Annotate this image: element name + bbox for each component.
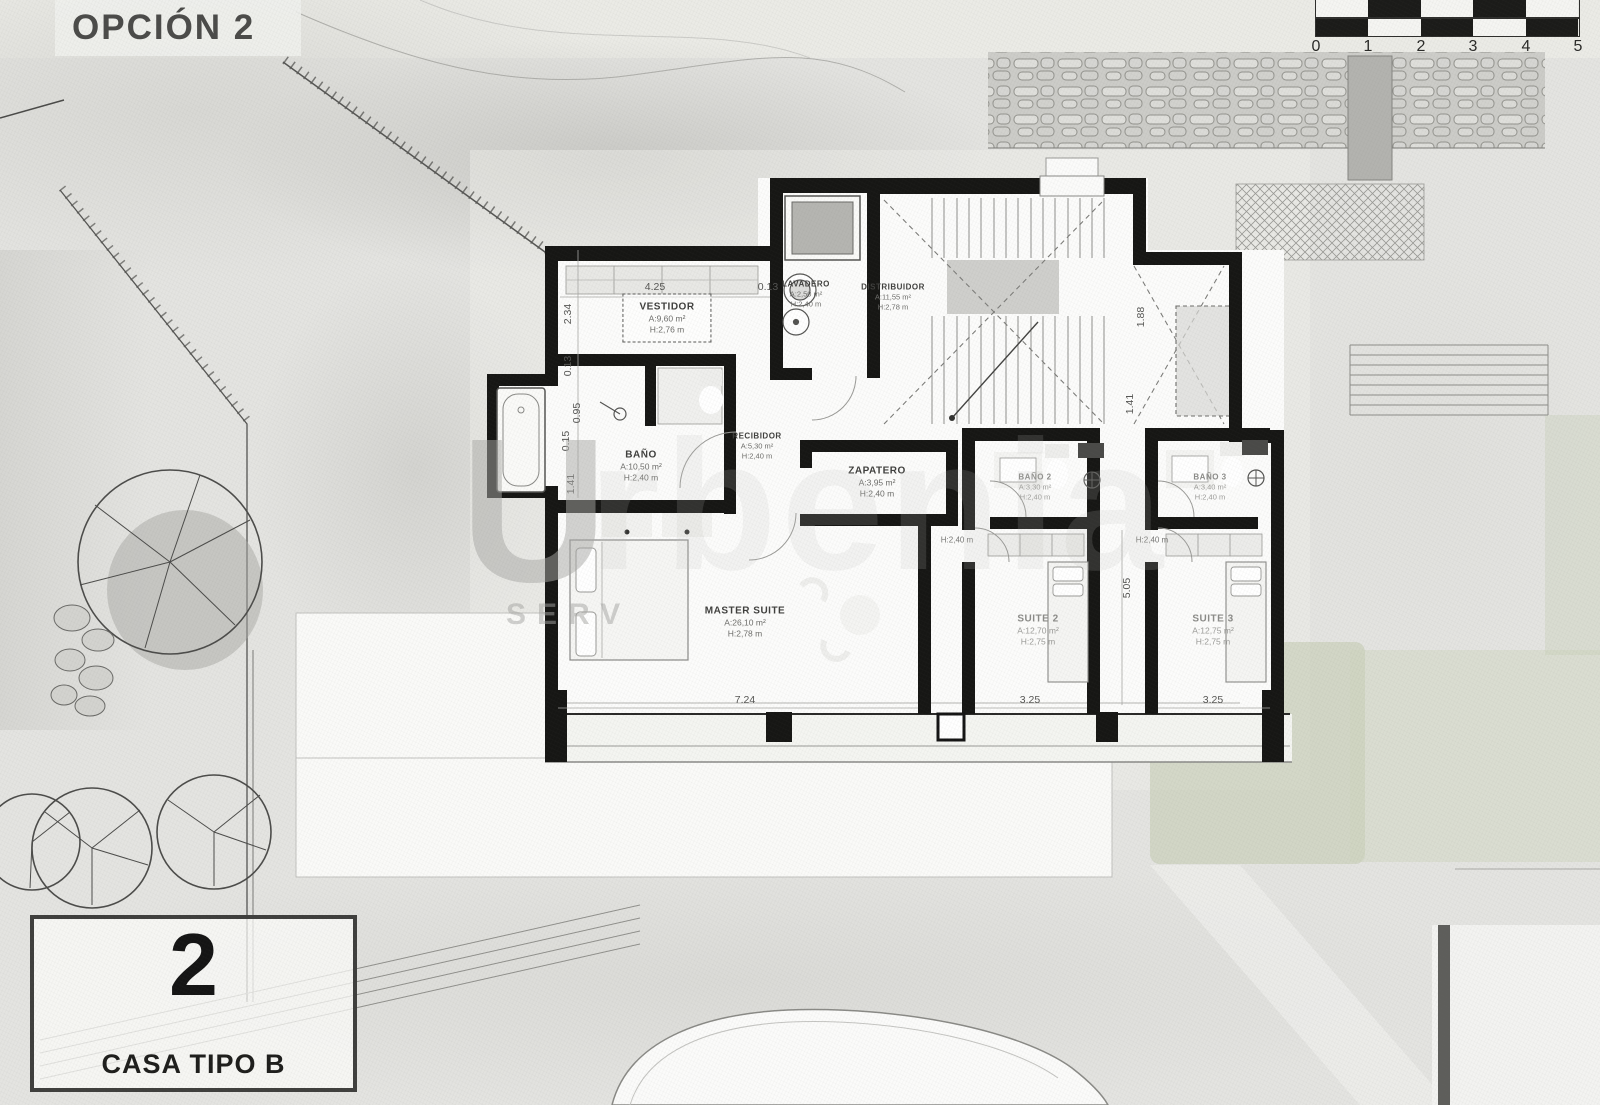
room-label-bano: BAÑO A:10,50 m² H:2,40 m bbox=[620, 450, 662, 483]
room-name: BAÑO bbox=[620, 450, 662, 461]
room-area: A:2,50 m² bbox=[782, 290, 830, 299]
dim-left-e: 1.41 bbox=[565, 474, 577, 494]
dim-right-a: 1.88 bbox=[1135, 307, 1147, 327]
dim-bottom-a: 7.24 bbox=[735, 694, 755, 706]
room-name: DISTRIBUIDOR bbox=[861, 283, 925, 292]
scale-numbers: 0 1 2 3 4 5 bbox=[1316, 36, 1579, 58]
room-name: SUITE 3 bbox=[1192, 614, 1234, 625]
master-bed bbox=[570, 540, 688, 660]
room-height: H:2,78 m bbox=[861, 303, 925, 312]
stone-wall bbox=[988, 52, 1545, 148]
scale-cell bbox=[1368, 18, 1420, 36]
floor-plan bbox=[487, 158, 1292, 762]
scale-cell bbox=[1526, 18, 1578, 36]
room-name: RECIBIDOR bbox=[732, 432, 781, 441]
room-label-recibidor: RECIBIDOR A:5,30 m² H:2,40 m bbox=[732, 432, 781, 461]
room-name: ZAPATERO bbox=[848, 466, 906, 477]
dim-corridor-height-b: H:2,40 m bbox=[1136, 536, 1168, 545]
room-height: H:2,40 m bbox=[1018, 493, 1051, 502]
dim-top-b: 0.13 bbox=[758, 281, 778, 293]
neighbor-structure bbox=[1432, 869, 1600, 1105]
room-area: A:10,50 m² bbox=[620, 462, 662, 472]
dim-bottom-b: 3.25 bbox=[1020, 694, 1040, 706]
scale-bar: 0 1 2 3 4 5 bbox=[1316, 0, 1579, 58]
dim-left-b: 0.13 bbox=[562, 356, 574, 376]
scale-tick: 3 bbox=[1469, 38, 1478, 56]
scale-cell bbox=[1368, 0, 1420, 18]
scale-cell bbox=[1473, 18, 1525, 36]
room-name: SUITE 2 bbox=[1017, 614, 1059, 625]
dim-left-c: 0.95 bbox=[571, 403, 583, 423]
window-mullion bbox=[938, 714, 964, 740]
dim-right-b: 1.41 bbox=[1124, 394, 1136, 414]
scale-cell bbox=[1316, 0, 1368, 18]
room-name: BAÑO 2 bbox=[1018, 473, 1051, 482]
room-area: A:9,60 m² bbox=[639, 314, 694, 324]
room-height: H:2,40 m bbox=[782, 300, 830, 309]
scale-cell bbox=[1526, 0, 1578, 18]
scale-tick: 0 bbox=[1312, 38, 1321, 56]
room-area: A:3,40 m² bbox=[1193, 483, 1226, 492]
room-label-distribuidor: DISTRIBUIDOR A:11,55 m² H:2,78 m bbox=[861, 283, 925, 312]
room-label-bano3: BAÑO 3 A:3,40 m² H:2,40 m bbox=[1193, 473, 1226, 502]
room-height: H:2,75 m bbox=[1192, 637, 1234, 647]
scale-cell bbox=[1421, 0, 1473, 18]
room-label-master-suite: MASTER SUITE A:26,10 m² H:2,78 m bbox=[705, 606, 785, 639]
scale-cell bbox=[1473, 0, 1525, 18]
house-type-label: CASA TIPO B bbox=[34, 1049, 353, 1080]
scale-tick: 5 bbox=[1574, 38, 1583, 56]
roof-window bbox=[1040, 158, 1104, 196]
room-height: H:2,40 m bbox=[1193, 493, 1226, 502]
scale-tick: 4 bbox=[1522, 38, 1531, 56]
dim-bottom-c: 3.25 bbox=[1203, 694, 1223, 706]
room-area: A:26,10 m² bbox=[705, 618, 785, 628]
room-height: H:2,78 m bbox=[705, 629, 785, 639]
crosshatch-area bbox=[1236, 184, 1424, 260]
room-height: H:2,75 m bbox=[1017, 637, 1059, 647]
room-label-suite3: SUITE 3 A:12,75 m² H:2,75 m bbox=[1192, 614, 1234, 647]
bathtub bbox=[497, 388, 545, 492]
room-label-lavadero: LAVADERO A:2,50 m² H:2,40 m bbox=[782, 280, 830, 309]
scale-cell bbox=[1421, 18, 1473, 36]
dim-corridor-height-a: H:2,40 m bbox=[941, 536, 973, 545]
scale-tick: 1 bbox=[1364, 38, 1373, 56]
steps-right bbox=[1350, 345, 1548, 415]
site-plan-sheet: VESTIDOR A:9,60 m² H:2,76 m LAVADERO A:2… bbox=[0, 0, 1600, 1105]
room-area: A:3,30 m² bbox=[1018, 483, 1051, 492]
room-label-bano2: BAÑO 2 A:3,30 m² H:2,40 m bbox=[1018, 473, 1051, 502]
pool bbox=[612, 1010, 1108, 1105]
house-number: 2 bbox=[34, 919, 353, 1011]
room-height: H:2,76 m bbox=[639, 325, 694, 335]
room-area: A:12,75 m² bbox=[1192, 626, 1234, 636]
room-name: LAVADERO bbox=[782, 280, 830, 289]
dim-right-c: 5.05 bbox=[1121, 578, 1133, 598]
room-name: BAÑO 3 bbox=[1193, 473, 1226, 482]
room-name: VESTIDOR bbox=[639, 302, 694, 313]
scale-bar-row bbox=[1316, 18, 1579, 36]
room-height: H:2,40 m bbox=[620, 473, 662, 483]
room-area: A:12,70 m² bbox=[1017, 626, 1059, 636]
scale-cell bbox=[1316, 18, 1368, 36]
room-name: MASTER SUITE bbox=[705, 606, 785, 617]
scale-bar-row bbox=[1316, 0, 1579, 18]
tree-canopies bbox=[0, 470, 271, 908]
machine-closet bbox=[785, 196, 860, 260]
room-area: A:5,30 m² bbox=[732, 442, 781, 451]
room-height: H:2,40 m bbox=[732, 452, 781, 461]
room-label-suite2: SUITE 2 A:12,70 m² H:2,75 m bbox=[1017, 614, 1059, 647]
dim-left-a: 2.34 bbox=[562, 304, 574, 324]
room-label-vestidor: VESTIDOR A:9,60 m² H:2,76 m bbox=[622, 294, 711, 343]
scale-tick: 2 bbox=[1417, 38, 1426, 56]
room-area: A:3,95 m² bbox=[848, 478, 906, 488]
page-title: OPCIÓN 2 bbox=[72, 8, 255, 48]
house-info-box: 2 CASA TIPO B bbox=[30, 915, 357, 1092]
room-label-zapatero: ZAPATERO A:3,95 m² H:2,40 m bbox=[848, 466, 906, 499]
rubble-stones bbox=[51, 605, 114, 716]
room-area: A:11,55 m² bbox=[861, 293, 925, 302]
room-height: H:2,40 m bbox=[848, 489, 906, 499]
dim-left-d: 0.15 bbox=[560, 431, 572, 451]
dim-top-a: 4.25 bbox=[645, 281, 665, 293]
